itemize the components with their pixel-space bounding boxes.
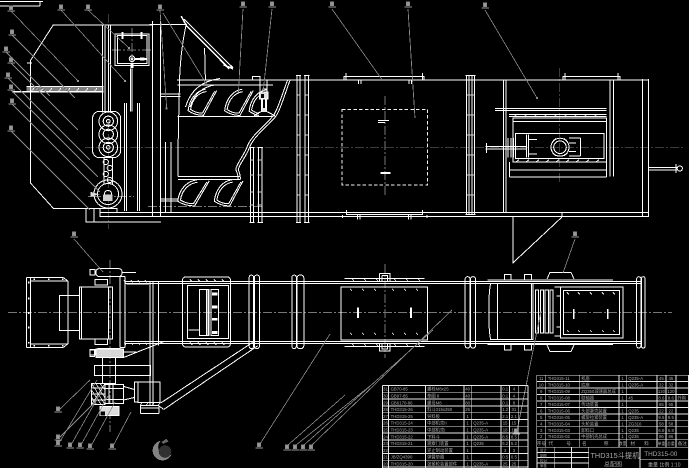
svg-text:22: 22 bbox=[669, 408, 674, 413]
svg-text:Q235: Q235 bbox=[628, 408, 639, 413]
svg-text:GB97-85: GB97-85 bbox=[391, 394, 409, 399]
svg-text:制图: 制图 bbox=[540, 453, 547, 458]
svg-text:卸料口: 卸料口 bbox=[581, 427, 594, 434]
svg-text:Q235-A: Q235-A bbox=[473, 434, 488, 439]
svg-text:45: 45 bbox=[669, 376, 674, 381]
svg-text:设计: 设计 bbox=[540, 448, 547, 453]
svg-text:58: 58 bbox=[659, 421, 664, 426]
svg-text:Q235-A: Q235-A bbox=[473, 462, 488, 467]
svg-text:垫圈 8: 垫圈 8 bbox=[427, 393, 440, 400]
svg-text:2.1: 2.1 bbox=[502, 414, 509, 419]
svg-text:8.5: 8.5 bbox=[502, 434, 509, 439]
svg-text:逆止制动装置: 逆止制动装置 bbox=[427, 447, 453, 454]
svg-text:28: 28 bbox=[383, 407, 388, 412]
svg-text:86: 86 bbox=[669, 434, 674, 439]
svg-text:0.5: 0.5 bbox=[511, 455, 518, 460]
svg-text:6.8: 6.8 bbox=[658, 428, 665, 433]
svg-text:底座: 底座 bbox=[581, 382, 590, 389]
svg-text:THD315-11: THD315-11 bbox=[548, 376, 571, 381]
svg-text:代 号: 代 号 bbox=[548, 440, 576, 447]
svg-text:10: 10 bbox=[539, 383, 544, 388]
svg-text:下料斗: 下料斗 bbox=[427, 433, 441, 440]
svg-text:THD315-23: THD315-23 bbox=[391, 428, 414, 433]
svg-text:65: 65 bbox=[669, 402, 674, 407]
svg-text:86: 86 bbox=[659, 434, 664, 439]
svg-text:观察门装置: 观察门装置 bbox=[427, 440, 449, 447]
svg-text:Q235-A: Q235-A bbox=[628, 376, 643, 381]
svg-text:序号: 序号 bbox=[537, 440, 547, 447]
svg-text:Q235-A: Q235-A bbox=[628, 383, 643, 388]
svg-text:重量 比例 1:10: 重量 比例 1:10 bbox=[648, 461, 681, 468]
svg-text:25: 25 bbox=[383, 428, 388, 433]
svg-text:总重: 总重 bbox=[667, 441, 675, 446]
svg-text:THD315-24: THD315-24 bbox=[391, 421, 414, 426]
svg-text:GB6170-86: GB6170-86 bbox=[391, 400, 414, 405]
svg-text:螺旋拉紧装置: 螺旋拉紧装置 bbox=[581, 414, 607, 421]
svg-text:THD315-06: THD315-06 bbox=[548, 408, 571, 413]
svg-text:传动装置: 传动装置 bbox=[581, 401, 599, 408]
svg-text:弹簧垫圈: 弹簧垫圈 bbox=[427, 454, 444, 461]
svg-text:120: 120 bbox=[667, 389, 675, 394]
svg-text:8.6: 8.6 bbox=[668, 396, 675, 401]
svg-text:Q235: Q235 bbox=[473, 441, 484, 446]
svg-text:15: 15 bbox=[503, 421, 508, 426]
svg-text:27: 27 bbox=[383, 414, 388, 419]
svg-text:Q235-A: Q235-A bbox=[473, 428, 488, 433]
svg-text:JB/ZQ4390: JB/ZQ4390 bbox=[391, 455, 413, 460]
svg-text:0.1: 0.1 bbox=[502, 394, 509, 399]
svg-text:25: 25 bbox=[512, 462, 517, 467]
svg-text:外购: 外购 bbox=[677, 395, 686, 402]
svg-text:THD315斗提机: THD315斗提机 bbox=[590, 451, 640, 460]
svg-text:0.5: 0.5 bbox=[502, 455, 509, 460]
svg-text:总配图: 总配图 bbox=[604, 461, 622, 468]
svg-text:审核: 审核 bbox=[540, 463, 547, 468]
svg-text:THD315-04: THD315-04 bbox=[548, 421, 571, 426]
svg-text:65: 65 bbox=[659, 402, 664, 407]
svg-text:23: 23 bbox=[383, 441, 388, 446]
svg-text:120: 120 bbox=[658, 389, 666, 394]
svg-text:15: 15 bbox=[512, 421, 517, 426]
svg-text:THD315-08: THD315-08 bbox=[548, 396, 571, 401]
svg-text:18: 18 bbox=[512, 428, 517, 433]
svg-text:26: 26 bbox=[465, 407, 470, 412]
svg-text:机座: 机座 bbox=[581, 375, 590, 382]
svg-text:Q235-A: Q235-A bbox=[473, 421, 488, 426]
svg-text:THD315-05: THD315-05 bbox=[548, 415, 571, 420]
svg-text:头轮装置: 头轮装置 bbox=[581, 420, 599, 427]
svg-text:0.1: 0.1 bbox=[502, 400, 509, 405]
svg-text:THD315-26: THD315-26 bbox=[391, 407, 414, 412]
svg-text:中部机壳II: 中部机壳II bbox=[427, 420, 447, 427]
svg-text:THD315-09: THD315-09 bbox=[548, 389, 571, 394]
svg-text:22: 22 bbox=[383, 448, 388, 453]
svg-text:8.5: 8.5 bbox=[511, 434, 518, 439]
svg-text:THD315-25: THD315-25 bbox=[391, 414, 414, 419]
svg-text:32: 32 bbox=[659, 383, 664, 388]
svg-text:联轴器: 联轴器 bbox=[581, 395, 595, 402]
svg-text:螺母M8: 螺母M8 bbox=[427, 399, 442, 406]
svg-text:45: 45 bbox=[628, 396, 633, 401]
svg-text:5.2: 5.2 bbox=[511, 441, 518, 446]
svg-text:31: 31 bbox=[383, 387, 388, 392]
svg-text:Q235-A: Q235-A bbox=[628, 415, 643, 420]
svg-text:9.5: 9.5 bbox=[668, 415, 675, 420]
svg-text:24: 24 bbox=[383, 434, 388, 439]
svg-text:25: 25 bbox=[503, 462, 508, 467]
svg-text:9.5: 9.5 bbox=[658, 415, 665, 420]
svg-text:22: 22 bbox=[659, 408, 664, 413]
svg-text:ZG310: ZG310 bbox=[628, 421, 642, 426]
svg-text:GB70-85: GB70-85 bbox=[391, 387, 409, 392]
svg-text:11: 11 bbox=[539, 376, 544, 381]
svg-text:单重: 单重 bbox=[658, 441, 666, 446]
svg-text:Q235: Q235 bbox=[628, 428, 639, 433]
svg-text:18: 18 bbox=[503, 428, 508, 433]
svg-text:THD315-20: THD315-20 bbox=[391, 462, 414, 467]
svg-text:料斗315x250: 料斗315x250 bbox=[427, 406, 453, 413]
svg-text:26: 26 bbox=[383, 421, 388, 426]
svg-text:头部罩壳装置: 头部罩壳装置 bbox=[581, 407, 607, 414]
svg-text:名 称: 名 称 bbox=[582, 440, 616, 447]
svg-text:20: 20 bbox=[383, 462, 388, 467]
svg-text:THD315-21: THD315-21 bbox=[391, 441, 414, 446]
svg-text:30: 30 bbox=[383, 394, 388, 399]
svg-text:5.2: 5.2 bbox=[502, 441, 509, 446]
svg-text:张紧轮装置部件: 张紧轮装置部件 bbox=[427, 461, 458, 468]
svg-text:40: 40 bbox=[465, 394, 470, 399]
svg-text:中部机壳总成: 中部机壳总成 bbox=[581, 433, 607, 440]
svg-text:THD315-10: THD315-10 bbox=[548, 383, 571, 388]
svg-text:材 料: 材 料 bbox=[630, 440, 652, 447]
svg-text:螺栓M8x25: 螺栓M8x25 bbox=[427, 386, 449, 393]
svg-text:80: 80 bbox=[465, 400, 470, 405]
svg-text:导料板: 导料板 bbox=[427, 413, 441, 420]
svg-text:1.2: 1.2 bbox=[502, 407, 509, 412]
svg-text:数量: 数量 bbox=[618, 440, 628, 447]
svg-text:45: 45 bbox=[659, 376, 664, 381]
svg-text:31: 31 bbox=[512, 407, 517, 412]
svg-text:21: 21 bbox=[383, 455, 388, 460]
svg-text:0.1: 0.1 bbox=[502, 387, 509, 392]
svg-text:40: 40 bbox=[465, 387, 470, 392]
svg-text:校对: 校对 bbox=[540, 458, 547, 463]
svg-text:中部机壳I: 中部机壳I bbox=[427, 427, 445, 434]
svg-text:ZQ350减速器总成: ZQ350减速器总成 bbox=[581, 388, 616, 395]
svg-text:THD315-07: THD315-07 bbox=[548, 402, 571, 407]
svg-text:2.1: 2.1 bbox=[511, 414, 518, 419]
svg-text:29: 29 bbox=[383, 400, 388, 405]
svg-text:58: 58 bbox=[669, 421, 674, 426]
svg-text:备注: 备注 bbox=[678, 440, 688, 447]
svg-text:32: 32 bbox=[669, 383, 674, 388]
svg-text:THD315-02: THD315-02 bbox=[548, 434, 571, 439]
svg-text:THD315-00: THD315-00 bbox=[644, 451, 677, 458]
svg-text:Q235: Q235 bbox=[628, 434, 639, 439]
svg-text:8.6: 8.6 bbox=[658, 396, 665, 401]
svg-text:6.8: 6.8 bbox=[668, 428, 675, 433]
svg-text:THD315-03: THD315-03 bbox=[548, 428, 571, 433]
svg-text:THD315-22: THD315-22 bbox=[391, 434, 414, 439]
